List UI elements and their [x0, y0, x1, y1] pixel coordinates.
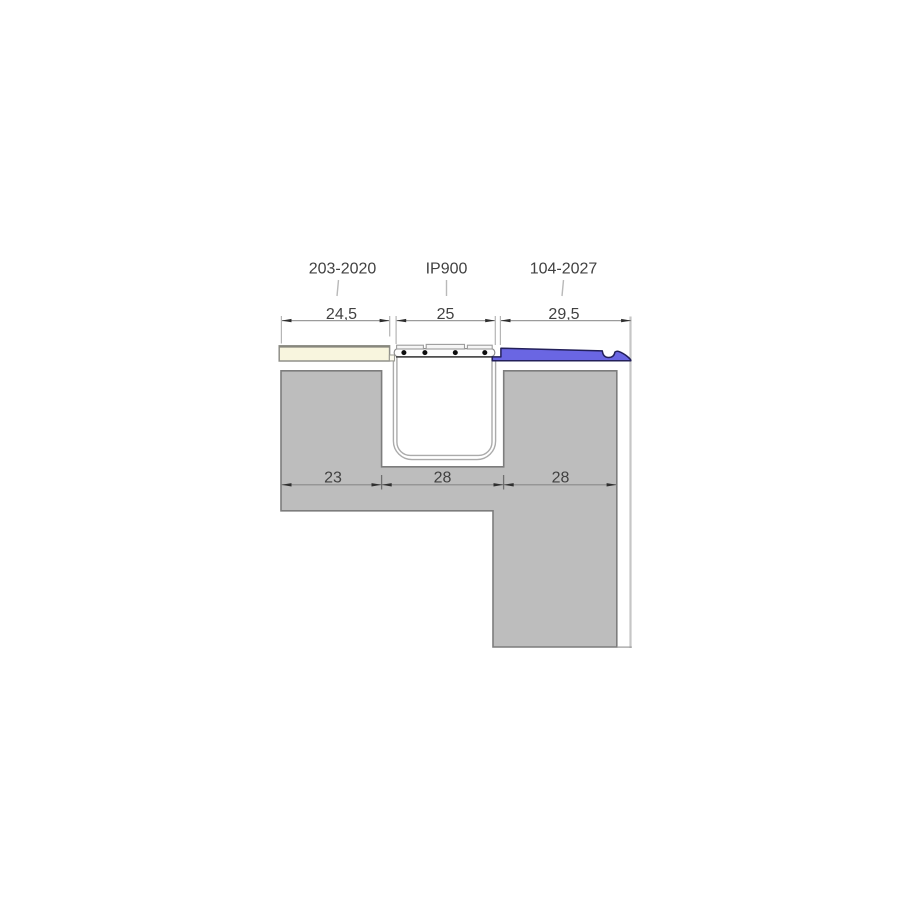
svg-text:23: 23 [324, 469, 342, 486]
svg-text:IP900: IP900 [426, 261, 468, 278]
svg-text:203-2020: 203-2020 [309, 261, 377, 278]
svg-text:28: 28 [552, 469, 570, 486]
svg-text:28: 28 [434, 469, 452, 486]
svg-text:104-2027: 104-2027 [530, 261, 598, 278]
